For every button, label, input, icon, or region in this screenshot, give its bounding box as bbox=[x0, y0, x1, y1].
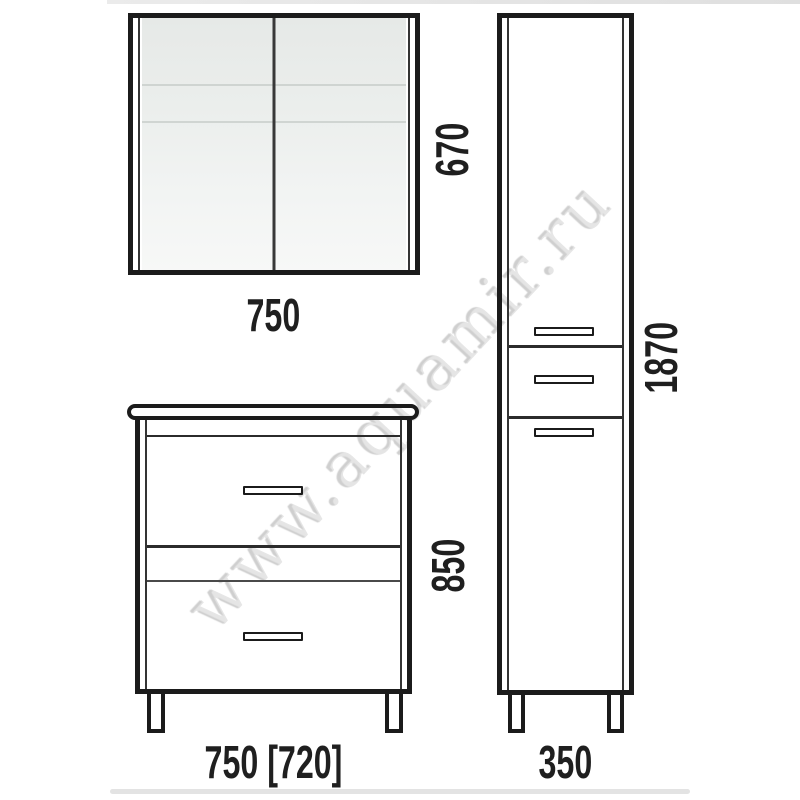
vanity-drawer-handle-bottom bbox=[243, 632, 303, 641]
tall-cabinet-section-divider-line bbox=[509, 345, 622, 348]
tall-cabinet-leg-left bbox=[508, 695, 525, 733]
dimension-value: 1870 bbox=[634, 322, 688, 394]
vanity-top-rail-line bbox=[147, 435, 400, 437]
dimension-label-vanity-height: 850 bbox=[423, 491, 473, 641]
top-edge-strip bbox=[107, 0, 800, 4]
dimension-value: 750 [720] bbox=[204, 735, 342, 789]
dimension-value: 670 bbox=[425, 123, 479, 177]
mirror-side-panel-line-right bbox=[408, 18, 410, 270]
bottom-edge-strip bbox=[110, 789, 690, 794]
vanity-drawer-handle-top bbox=[243, 486, 303, 495]
vanity-countertop bbox=[127, 404, 419, 420]
vanity-body bbox=[135, 420, 412, 694]
vanity-drawer-divider-line bbox=[147, 580, 400, 582]
furniture-dimension-diagram: www.aquamir.ru 750 670 bbox=[0, 0, 800, 800]
mirror-door-divider bbox=[273, 18, 276, 270]
tall-cabinet-side-panel-line-left bbox=[507, 18, 509, 690]
dimension-value: 350 bbox=[538, 735, 592, 789]
dimension-label-mirror-width: 750 bbox=[178, 290, 368, 340]
tall-cabinet-section-divider-line bbox=[509, 416, 622, 419]
dimension-label-tall-cabinet-height: 1870 bbox=[636, 283, 686, 433]
mirror-side-panel-line-left bbox=[138, 18, 140, 270]
vanity-side-panel-line-left bbox=[145, 420, 147, 689]
vanity-side-panel-line-right bbox=[400, 420, 402, 689]
dimension-label-tall-cabinet-width: 350 bbox=[465, 737, 665, 787]
vanity-leg-left bbox=[147, 694, 165, 733]
dimension-label-mirror-height: 670 bbox=[427, 75, 477, 225]
dimension-label-vanity-width: 750 [720] bbox=[123, 737, 423, 787]
tall-cabinet-drawer-handle bbox=[534, 375, 594, 384]
dimension-value: 850 bbox=[421, 539, 475, 593]
dimension-value: 750 bbox=[246, 288, 300, 342]
mirror-cabinet bbox=[128, 13, 420, 275]
vanity-drawer-divider-line bbox=[147, 545, 400, 548]
tall-cabinet bbox=[497, 13, 634, 695]
tall-cabinet-door-handle-top bbox=[534, 327, 594, 336]
tall-cabinet-door-handle-bottom bbox=[534, 428, 594, 437]
vanity-leg-right bbox=[385, 694, 403, 733]
tall-cabinet-leg-right bbox=[607, 695, 624, 733]
tall-cabinet-side-panel-line-right bbox=[622, 18, 624, 690]
